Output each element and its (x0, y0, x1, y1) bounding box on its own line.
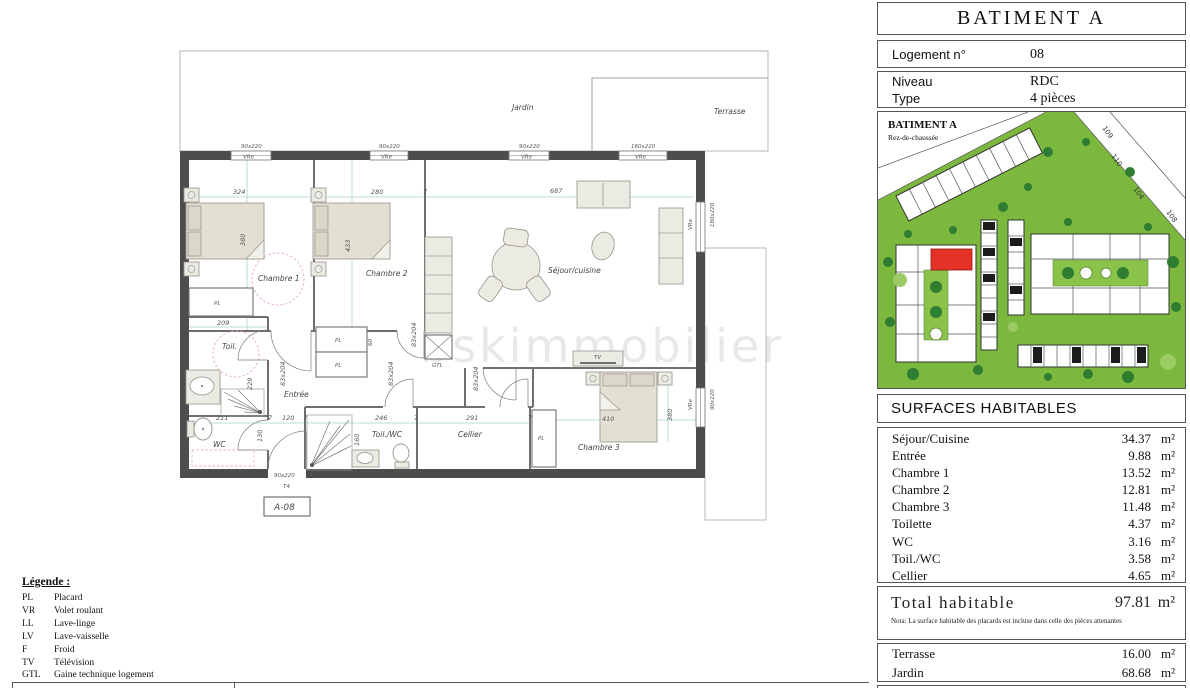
site-plan-title: BATIMENT A (888, 119, 957, 131)
exterior-row: Terrasse16.00m² (878, 645, 1185, 664)
legend-item: PLPlacard (22, 592, 154, 605)
toilette-label: Toil. (222, 342, 237, 351)
dim-246: 246 (375, 414, 387, 422)
terrasse-area: Terrasse (592, 78, 768, 151)
vr-label: VRe (521, 155, 533, 161)
total-row: Total habitable 97.81 m² (878, 587, 1185, 613)
dim-120: 120 (282, 414, 294, 422)
legend-item: FFroid (22, 644, 154, 657)
legend-item: GTLGaine technique logement (22, 669, 154, 682)
building-right (1031, 234, 1169, 314)
total-unit: m² (1158, 594, 1175, 612)
surface-row: Toilette4.37m² (878, 515, 1185, 532)
dim-380: 380 (239, 234, 247, 246)
dim-130: 130 (256, 430, 264, 442)
total-label: Total habitable (891, 593, 1015, 613)
building-left (896, 245, 976, 362)
wc-label: WC (213, 440, 226, 449)
surface-row: Entrée9.88m² (878, 447, 1185, 464)
surface-row: Chambre 212.81m² (878, 481, 1185, 498)
entry-door-dim: 90x220 (274, 473, 295, 479)
entree-label: Entrée (284, 390, 309, 399)
dim-291: 291 (466, 414, 478, 422)
site-plan-box: 109 110 104 108 BATIMENT A Rez-de-chauss… (877, 111, 1186, 389)
pl-label: PL (335, 338, 341, 344)
building-title-box: BATIMENT A (877, 2, 1186, 35)
window-dim: 90x220 (379, 144, 400, 150)
dim-687: 687 (550, 187, 563, 195)
floor-plan-sheet: { "header": { "title": "BATIMENT A", "ro… (0, 0, 1190, 687)
chambre1-label: Chambre 1 (258, 274, 300, 283)
chambre2-label: Chambre 2 (366, 269, 408, 278)
door-dim: 83x204 (410, 322, 418, 347)
vr-label: VRe (688, 398, 694, 410)
legend-item: TVTélévision (22, 657, 154, 670)
title-block-cutoff (12, 682, 869, 688)
niveau-row: Niveau RDC (878, 73, 1185, 90)
pl-label: PL (538, 436, 544, 442)
vr-label: VRe (381, 155, 393, 161)
toilette: Toil. 209 229 (186, 319, 264, 416)
dim-280: 280 (371, 188, 383, 196)
surface-row: Chambre 113.52m² (878, 464, 1185, 481)
surface-row: Toil./WC3.58m² (878, 550, 1185, 567)
pl-label: PL (335, 363, 341, 369)
dim-433: 433 (344, 240, 352, 252)
exterior-row: Jardin68.68m² (878, 664, 1185, 683)
sejour-label: Séjour/cuisine (548, 266, 601, 275)
site-plan-map: 109 110 104 108 BATIMENT A Rez-de-chauss… (878, 112, 1185, 388)
terrasse-label: Terrasse (714, 107, 746, 116)
jardin-area: Jardin (180, 51, 768, 520)
surface-row: Chambre 311.48m² (878, 498, 1185, 515)
surface-row: WC3.16m² (878, 533, 1185, 550)
jardin-label: Jardin (510, 103, 534, 112)
legend-item: LVLave-vaisselle (22, 631, 154, 644)
sejour: 687 Séjour/cuisine (477, 181, 683, 303)
window-dim: 160x220 (631, 144, 656, 150)
highlighted-unit (931, 249, 972, 270)
chambre2: Chambre 2 280 433 7 (311, 188, 428, 278)
entry-door-type: T4 (283, 484, 290, 490)
window-dim: 90x220 (710, 389, 716, 410)
legend: Légende : PLPlacard VRVolet roulant LLLa… (22, 576, 154, 682)
total-box: Total habitable 97.81 m² Nota: La surfac… (877, 586, 1186, 640)
dim-324: 324 (233, 188, 245, 196)
wc-room: WC 211 130 (187, 414, 264, 466)
cellier: Cellier (458, 430, 483, 439)
title-block-divider (234, 683, 235, 688)
logement-box: Logement n° 08 (877, 40, 1186, 68)
toilwc-label: Toil./WC (372, 430, 403, 439)
dim-7: 7 (414, 414, 419, 422)
door-dim: 83x204 (279, 361, 287, 386)
window-dim: 180x220 (710, 202, 716, 227)
entry-labels: 90x220 T4 A-08 (264, 473, 310, 516)
window-dim: 90x220 (519, 144, 540, 150)
pl-label: PL (214, 301, 220, 307)
gtl-label: GTL (432, 363, 443, 369)
surface-row: Séjour/Cuisine34.37m² (878, 430, 1185, 447)
vr-label: VRe (688, 218, 694, 230)
surfaces-title: SURFACES HABITABLES (878, 395, 1185, 422)
building-title: BATIMENT A (878, 3, 1185, 34)
legend-item: LLLave-linge (22, 618, 154, 631)
dim-229: 229 (246, 378, 254, 390)
window-dim: 90x220 (241, 144, 262, 150)
dim-160: 160 (353, 434, 361, 446)
surfaces-header-box: SURFACES HABITABLES (877, 394, 1186, 423)
surfaces-table: Séjour/Cuisine34.37m² Entrée9.88m² Chamb… (877, 427, 1186, 583)
unit-reference: A-08 (273, 503, 295, 513)
total-nota: Nota: La surface habitable des placards … (878, 617, 1185, 625)
vr-label: VRe (635, 155, 647, 161)
exterior-box: Terrasse16.00m² Jardin68.68m² (877, 643, 1186, 682)
niveau-type-box: Niveau RDC Type 4 pièces (877, 71, 1186, 108)
site-plan-subtitle: Rez-de-chaussée (888, 133, 939, 142)
legend-item: VRVolet roulant (22, 605, 154, 618)
surface-row: Cellier4.65m² (878, 567, 1185, 584)
dim-410: 410 (602, 415, 614, 423)
chambre3-label: Chambre 3 (578, 443, 620, 452)
dim-7: 7 (268, 414, 273, 422)
dim-211: 211 (216, 414, 228, 422)
vr-label: VRe (243, 155, 255, 161)
logement-row: Logement n° 08 (878, 46, 1185, 63)
tv-label: TV (594, 355, 602, 361)
total-value: 97.81 (1115, 594, 1151, 612)
dim-60: 60 (368, 339, 374, 346)
door-dim: 83x204 (472, 366, 480, 391)
dim-7: 7 (423, 188, 428, 196)
type-row: Type 4 pièces (878, 90, 1185, 107)
cellier-label: Cellier (458, 430, 483, 439)
dim-209: 209 (217, 319, 229, 327)
dim-380: 380 (666, 409, 674, 421)
legend-title: Légende : (22, 576, 154, 588)
door-dim: 83x204 (387, 361, 395, 386)
